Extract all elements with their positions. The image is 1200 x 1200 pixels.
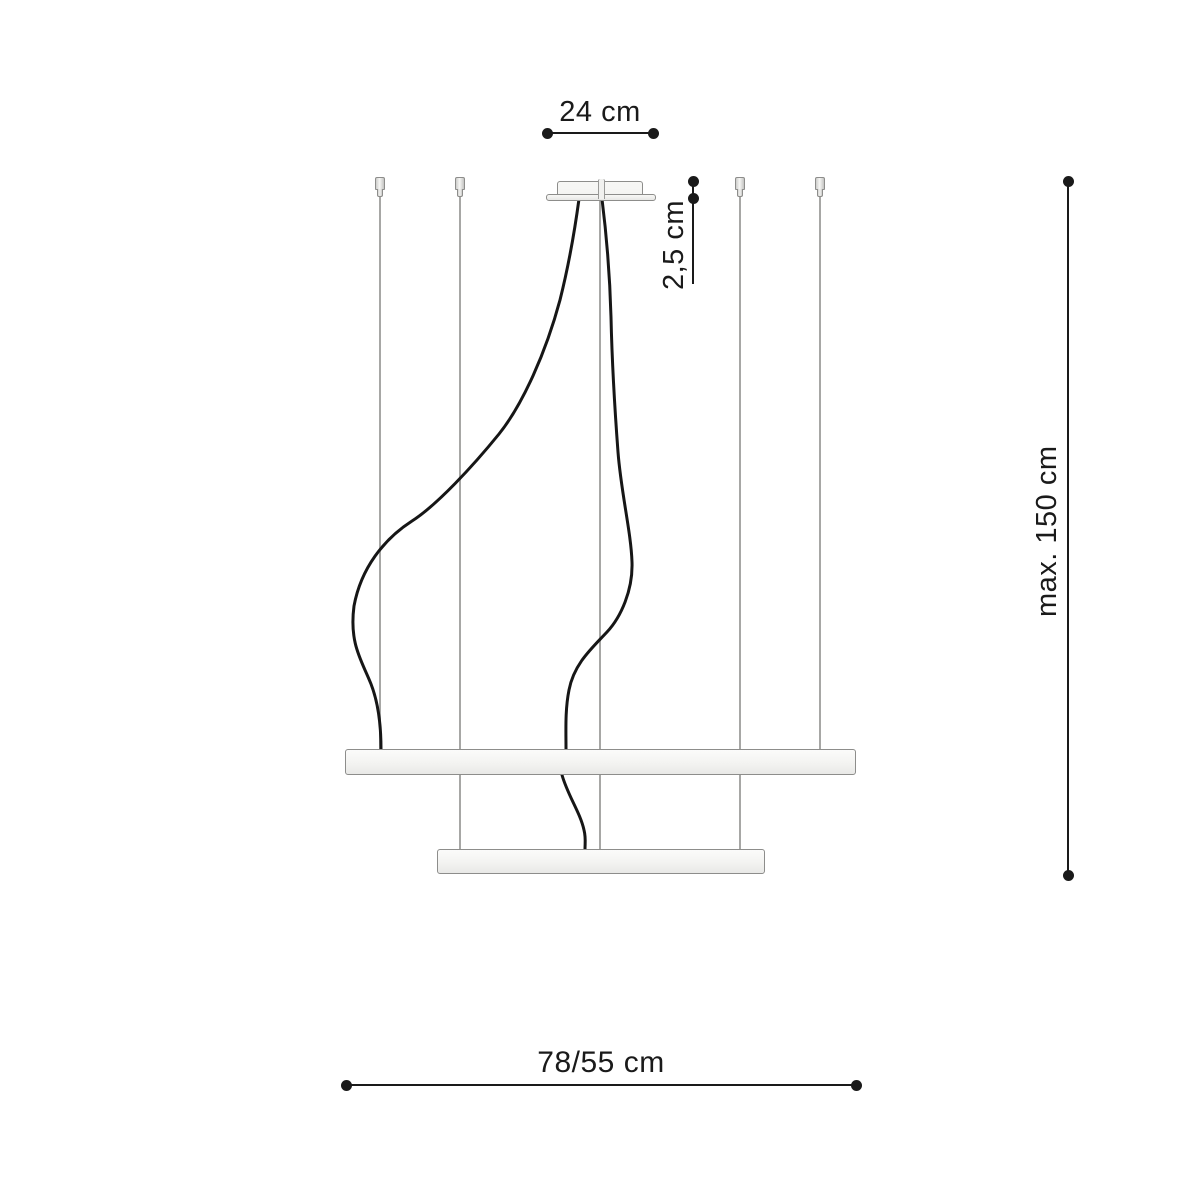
dim-suspension-max-line [1067,181,1069,875]
dim-suspension-max-label: max. 150 cm [1028,442,1066,620]
pendant-lamp-dimension-diagram: 24 cm 2,5 cm max. 150 cm 78/55 cm [0,0,1200,1200]
dim-suspension-max-dot-bottom [1063,870,1074,881]
dim-canopy-width-line [547,132,653,134]
dim-canopy-width-dot-left [542,128,553,139]
dim-canopy-width-dot-right [648,128,659,139]
dim-ring-diameters-line [346,1084,856,1086]
power-cable-right [566,199,632,749]
power-cable-right-lower-segment [562,775,585,849]
power-cable-left [353,199,579,749]
dim-canopy-height-label: 2,5 cm [656,202,692,290]
dim-ring-diameters-dot-left [341,1080,352,1091]
dim-canopy-height-dot-top [688,176,699,187]
dim-ring-diameters-label: 78/55 cm [501,1046,701,1080]
dim-canopy-width-label: 24 cm [520,96,680,129]
dim-suspension-max-dot-top [1063,176,1074,187]
ring-lower-55cm [437,849,765,874]
ring-upper-78cm [345,749,856,775]
dim-ring-diameters-dot-right [851,1080,862,1091]
canopy-cable-channel [598,179,605,199]
